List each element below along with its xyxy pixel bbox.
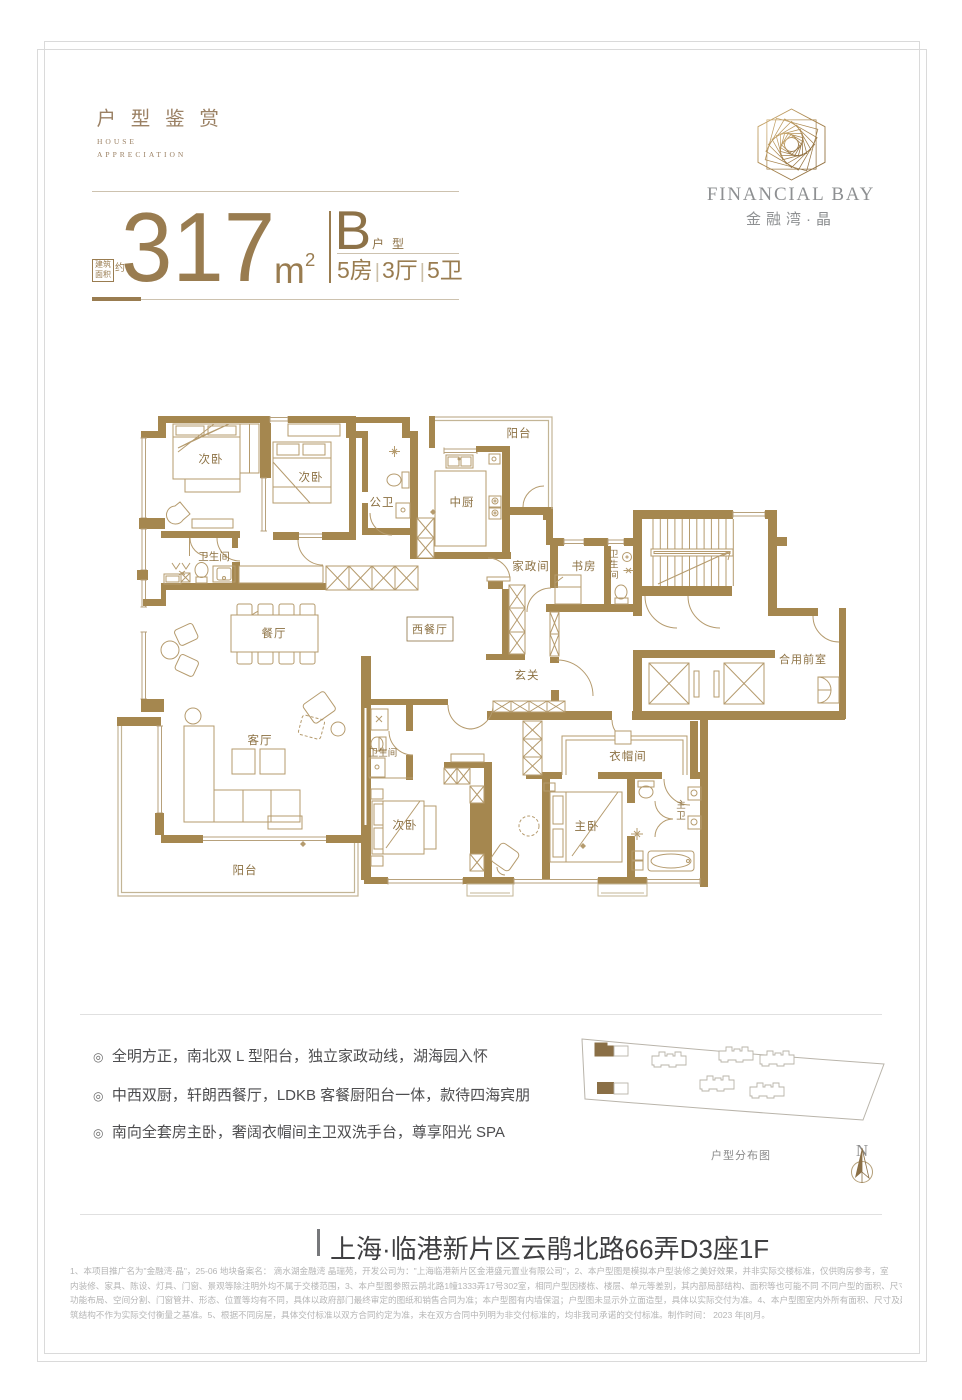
- svg-text:家政间: 家政间: [512, 559, 550, 573]
- svg-text:次卧: 次卧: [299, 470, 324, 484]
- svg-text:餐厅: 餐厅: [262, 626, 287, 640]
- svg-text:卫: 卫: [676, 811, 686, 822]
- svg-text:公卫: 公卫: [370, 496, 395, 509]
- svg-text:主卧: 主卧: [575, 820, 600, 833]
- svg-text:西餐厅: 西餐厅: [412, 622, 448, 636]
- svg-text:主: 主: [676, 799, 686, 811]
- svg-text:卫: 卫: [609, 549, 618, 559]
- svg-text:卫生间: 卫生间: [198, 550, 230, 563]
- svg-text:客厅: 客厅: [248, 733, 273, 747]
- svg-text:合用前室: 合用前室: [779, 652, 827, 666]
- svg-text:阳台: 阳台: [233, 863, 258, 877]
- svg-text:间: 间: [609, 569, 618, 580]
- svg-text:中厨: 中厨: [450, 496, 475, 509]
- svg-text:次卧: 次卧: [393, 818, 418, 832]
- svg-text:衣帽间: 衣帽间: [609, 749, 647, 763]
- svg-text:卫生间: 卫生间: [369, 747, 398, 759]
- svg-text:书房: 书房: [572, 560, 597, 573]
- svg-text:玄关: 玄关: [515, 668, 540, 682]
- svg-text:生: 生: [609, 559, 618, 570]
- svg-text:次卧: 次卧: [199, 452, 224, 466]
- svg-text:阳台: 阳台: [507, 426, 532, 440]
